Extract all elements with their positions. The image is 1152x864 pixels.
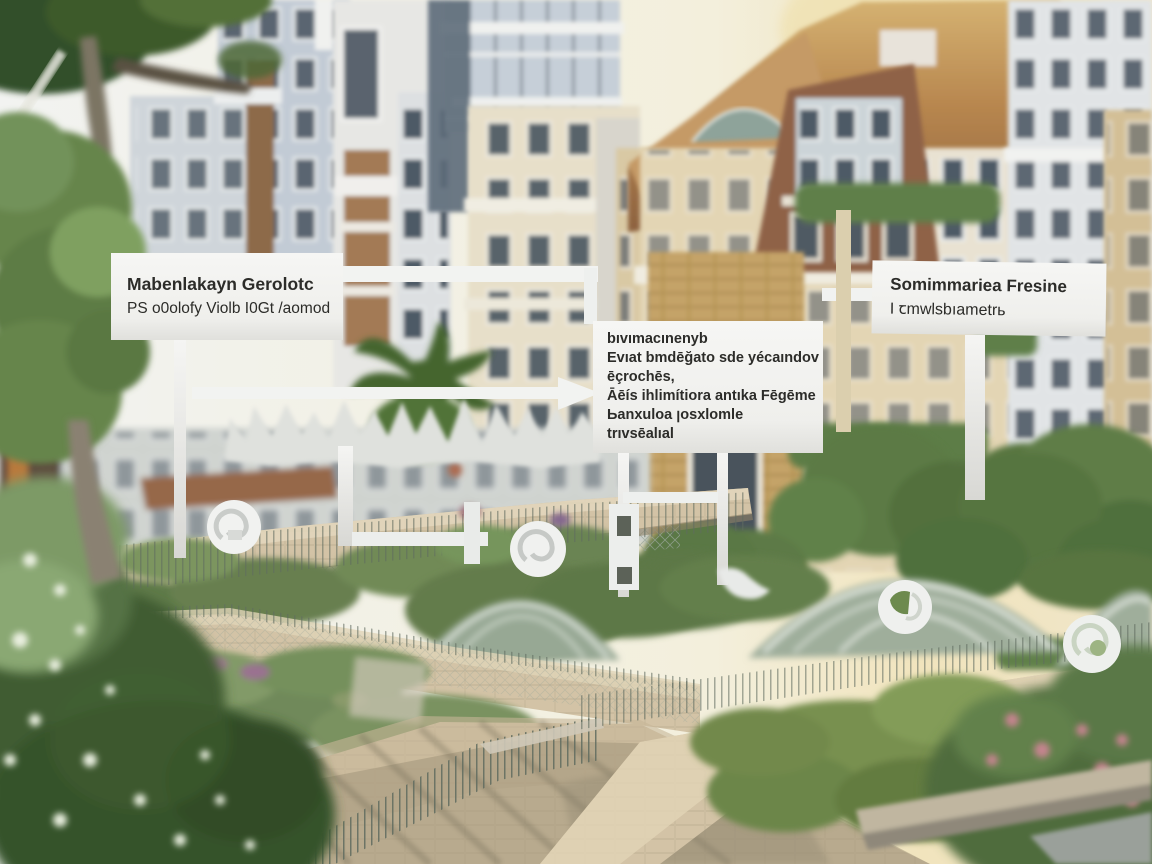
svg-text:I ꞇmwlsbıametrь: I ꞇmwlsbıametrь xyxy=(890,301,1006,320)
svg-text:Mabenlakayn Gerolotc: Mabenlakayn Gerolotc xyxy=(127,274,314,294)
svg-text:trıvsēalıal: trıvsēalıal xyxy=(607,426,674,442)
svg-text:bıvımacınenyb: bıvımacınenyb xyxy=(607,331,708,347)
svg-text:Evıat bmdēğato sde yécaındov: Evıat bmdēğato sde yécaındov xyxy=(607,350,819,366)
svg-text:Āēís ihlimítiora antıka Fēgēme: Āēís ihlimítiora antıka Fēgēme xyxy=(607,387,816,404)
svg-text:PS o0olofy Violb I0Gt /aomod: PS o0olofy Violb I0Gt /aomod xyxy=(127,300,330,317)
svg-text:Somimmariea Fresine: Somimmariea Fresine xyxy=(890,275,1067,296)
svg-text:Ьanxuloa ꞁosxlomle: Ьanxuloa ꞁosxlomle xyxy=(607,407,743,423)
svg-text:ēçrochēs,: ēçrochēs, xyxy=(607,369,675,385)
